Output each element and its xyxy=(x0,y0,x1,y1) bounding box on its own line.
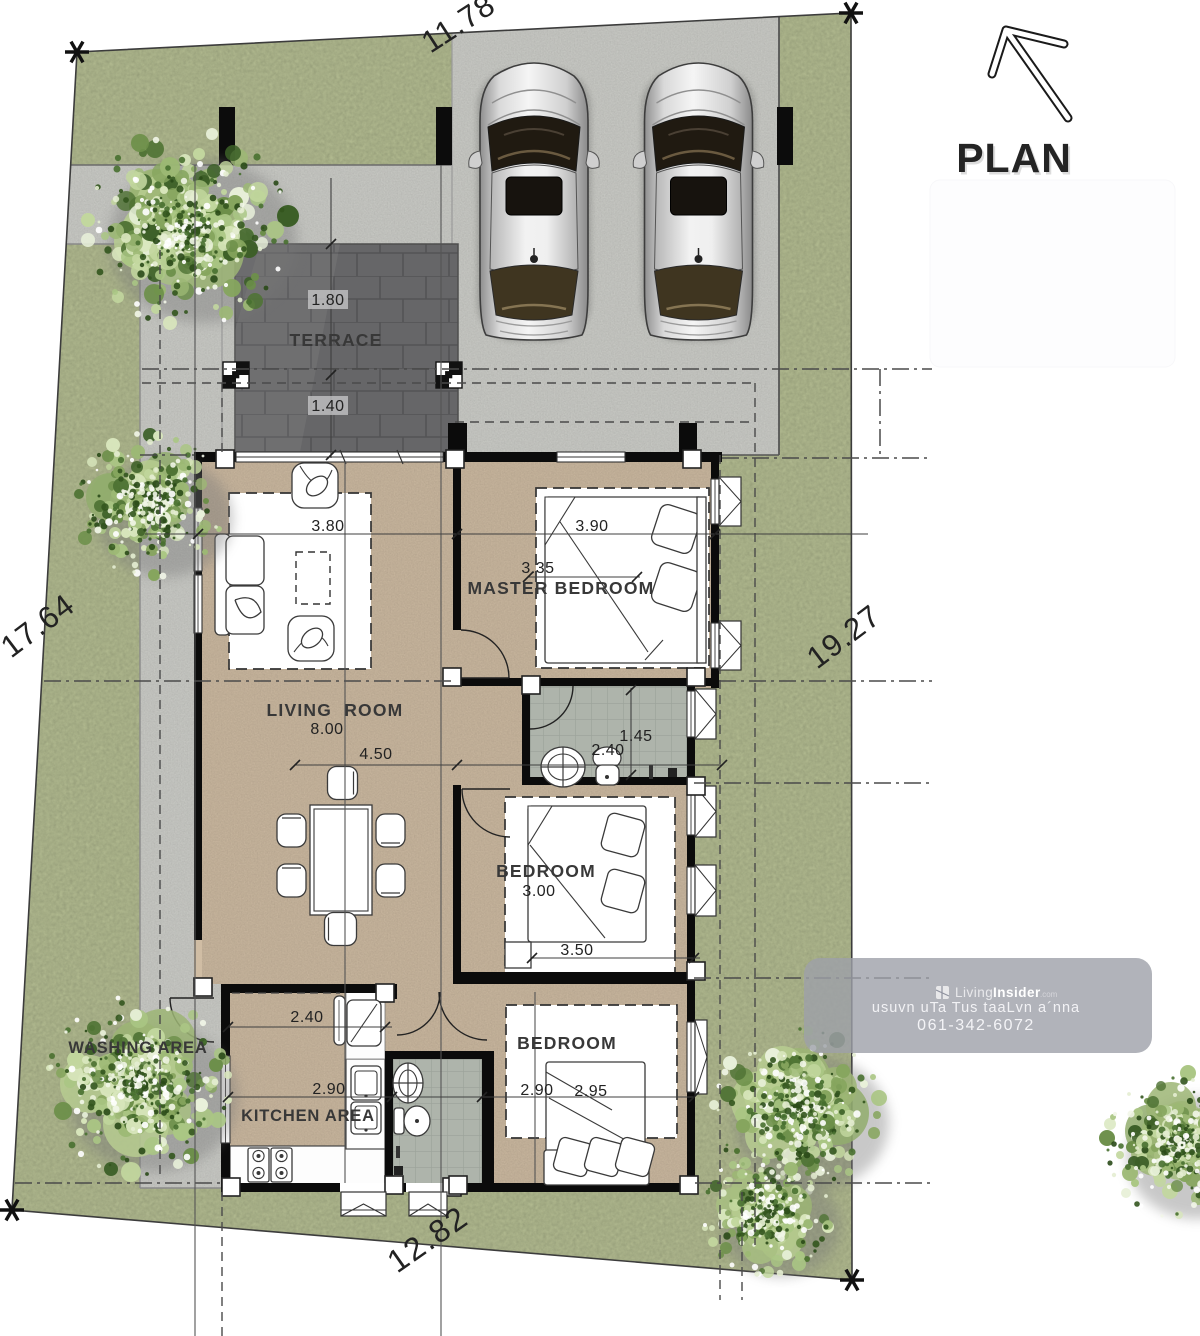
svg-text:Living: Living xyxy=(955,985,993,1000)
svg-text:MASTER BEDROOM: MASTER BEDROOM xyxy=(468,578,655,598)
svg-text:BEDROOM: BEDROOM xyxy=(517,1033,617,1053)
svg-text:PLAN: PLAN xyxy=(956,135,1072,181)
svg-text:BEDROOM: BEDROOM xyxy=(496,861,596,881)
svg-text:2.95: 2.95 xyxy=(574,1083,607,1100)
svg-text:3.80: 3.80 xyxy=(311,518,344,535)
svg-text:2.90: 2.90 xyxy=(520,1082,553,1099)
svg-text:Insider: Insider xyxy=(993,985,1041,1000)
svg-text:3.00: 3.00 xyxy=(522,883,555,900)
svg-text:KITCHEN AREA: KITCHEN AREA xyxy=(241,1107,375,1125)
svg-text:061-342-6072: 061-342-6072 xyxy=(917,1017,1035,1034)
svg-text:LIVING ROOM: LIVING ROOM xyxy=(267,700,404,720)
svg-text:.com: .com xyxy=(1040,990,1058,999)
svg-text:1.40: 1.40 xyxy=(311,398,344,415)
svg-text:4.50: 4.50 xyxy=(359,746,392,763)
svg-text:2.40: 2.40 xyxy=(290,1009,323,1026)
svg-text:2.90: 2.90 xyxy=(312,1081,345,1098)
svg-text:usuvn uTa Tus taaLvn a´nna: usuvn uTa Tus taaLvn a´nna xyxy=(872,1000,1080,1016)
svg-text:3.90: 3.90 xyxy=(575,518,608,535)
svg-text:2.40: 2.40 xyxy=(591,742,624,759)
svg-text:1.80: 1.80 xyxy=(311,292,344,309)
svg-text:8.00: 8.00 xyxy=(310,721,343,738)
svg-text:WASHING AREA: WASHING AREA xyxy=(68,1039,207,1057)
svg-text:3.50: 3.50 xyxy=(560,942,593,959)
svg-text:TERRACE: TERRACE xyxy=(290,330,383,350)
svg-text:3.35: 3.35 xyxy=(521,560,554,577)
